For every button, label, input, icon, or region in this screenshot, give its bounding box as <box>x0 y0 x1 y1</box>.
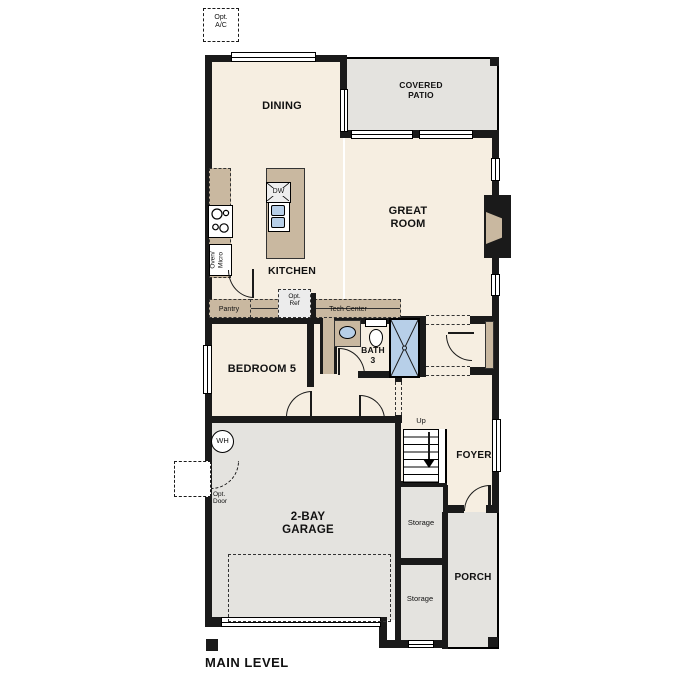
bath3-door-leaf <box>338 348 340 375</box>
greatroom-patio-slider-right <box>419 130 473 139</box>
floor-plan: Oven/ Micro DW Opt. Ref Pantry Tech Cent… <box>0 0 687 687</box>
greatroom-right-window-lower <box>491 274 500 296</box>
porch-label: PORCH <box>449 572 497 584</box>
opt-door-frame <box>174 461 211 497</box>
wall-closet-left <box>419 316 426 377</box>
cased-opening-greatroom-hall <box>426 315 470 325</box>
bedroom5-door-leaf <box>310 391 312 417</box>
opt-door-label: Opt. Door <box>208 491 238 506</box>
stairs-railing <box>438 429 446 483</box>
wall-bedroom-right <box>307 316 314 387</box>
entry-door-leaf <box>488 485 491 511</box>
dishwasher-label: DW <box>268 188 289 196</box>
water-heater-label: WH <box>211 437 234 446</box>
garage-door-clearance <box>228 554 391 622</box>
covered-patio-label: COVERED PATIO <box>388 81 454 101</box>
island-sink <box>268 202 290 232</box>
dining-label: DINING <box>247 100 317 113</box>
bedroom5-label: BEDROOM 5 <box>217 363 307 376</box>
toilet-tank <box>365 319 387 327</box>
foyer-label: FOYER <box>450 450 498 462</box>
patio-corner-post <box>490 57 499 66</box>
bath-sink <box>339 326 356 339</box>
dining-top-window <box>231 52 316 62</box>
wall-garage-stairs <box>395 422 401 646</box>
sink-basin-top <box>271 205 285 216</box>
storage-window <box>408 640 434 648</box>
tech-center-label: Tech Center <box>316 306 380 314</box>
level-marker-square <box>206 639 218 651</box>
sink-basin-bottom <box>271 217 285 228</box>
cased-opening-closet-foyer <box>426 366 470 376</box>
kitchen-label: KITCHEN <box>258 265 326 277</box>
storage-lower-label: Storage <box>399 595 441 604</box>
stairs-up-label: Up <box>410 417 432 426</box>
closet-shelf <box>485 321 494 369</box>
stairs-arrow-head <box>423 459 435 468</box>
hall-door-leaf <box>359 395 361 420</box>
closet-door-leaf <box>448 332 474 334</box>
cased-opening-hall-foyer <box>395 382 402 415</box>
bath3-label: BATH 3 <box>358 346 388 366</box>
garage-label: 2-BAY GARAGE <box>263 511 353 537</box>
pantry-label: Pantry <box>209 306 249 314</box>
bedroom5-window <box>203 345 212 394</box>
wall-left-exterior <box>205 55 212 627</box>
opt-ref-label: Opt. Ref <box>278 293 311 308</box>
pantry-door-leaf <box>252 269 254 298</box>
cooktop-burners-icon <box>209 206 231 236</box>
porch-corner-post <box>488 637 498 647</box>
opt-ac-label: Opt. A/C <box>203 14 239 30</box>
shower <box>389 318 420 378</box>
storage-upper-label: Storage <box>400 519 442 528</box>
foyer-window <box>492 419 501 472</box>
greatroom-patio-slider-left <box>351 130 413 139</box>
wall-porch-left <box>442 512 448 649</box>
wall-closet-bottom-right <box>468 367 499 375</box>
cooktop <box>208 205 233 238</box>
dining-patio-slider <box>340 89 348 132</box>
main-level-label: MAIN LEVEL <box>205 656 335 671</box>
shower-x-icon <box>391 320 418 376</box>
greatroom-right-window-upper <box>491 158 500 181</box>
great-room-label: GREAT ROOM <box>379 205 437 230</box>
stairs-arrow-shaft <box>428 432 430 460</box>
wall-storage-mid <box>395 558 446 565</box>
